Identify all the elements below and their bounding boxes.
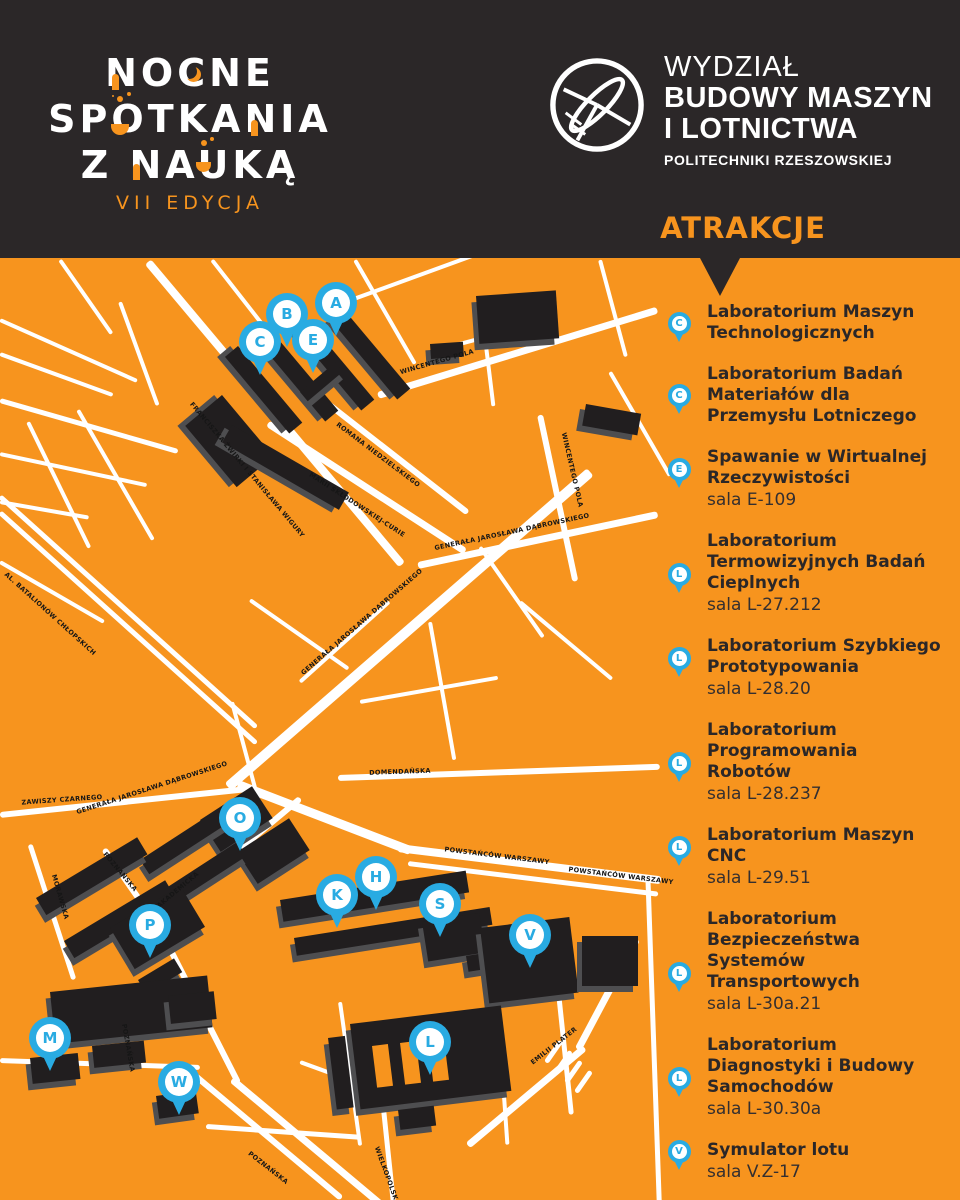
building (398, 1106, 436, 1130)
map-pin-P: P (129, 904, 171, 946)
map-pin-V: V (509, 914, 551, 956)
building (582, 936, 638, 986)
faculty-line2: BUDOWY MASZYN (664, 83, 933, 114)
attraction-title: Symulator lotu (707, 1140, 849, 1161)
faculty-line4: POLITECHNIKI RZESZOWSKIEJ (664, 152, 933, 168)
attraction-pin-wrap: V (662, 1140, 696, 1193)
map-pin-H: H (355, 856, 397, 898)
attractions-list: C Laboratorium Maszyn Technologicznych C… (662, 302, 954, 1193)
attraction-pin-icon: C (668, 384, 691, 407)
attraction-pin-wrap: C (662, 302, 696, 344)
attraction-item: L Laboratorium Diagnostyki i Budowy Samo… (662, 1035, 954, 1120)
street (574, 1070, 593, 1094)
map-pin-A: A (315, 282, 357, 324)
map-pin-K: K (316, 874, 358, 916)
street (0, 352, 113, 397)
attraction-text: Spawanie w Wirtualnej Rzeczywistości sal… (707, 447, 927, 511)
attraction-title: Spawanie w Wirtualnej Rzeczywistości (707, 447, 927, 489)
faculty-line1: WYDZIAŁ (664, 52, 933, 83)
attraction-pin-icon: V (668, 1140, 691, 1163)
street (0, 511, 258, 746)
attraction-text: Laboratorium Badań Materiałów dla Przemy… (707, 364, 916, 427)
building (476, 290, 559, 343)
attraction-title: Laboratorium Bezpieczeństwa Systemów Tra… (707, 909, 860, 993)
attraction-pin-wrap: L (662, 720, 696, 805)
map-pin-O: O (219, 797, 261, 839)
street (598, 259, 628, 357)
attraction-text: Laboratorium Szybkiego Prototypowania sa… (707, 636, 941, 700)
event-edition: VII EDYCJA (20, 192, 360, 214)
street (249, 598, 350, 670)
street-label: POZNAŃSKA (247, 1150, 289, 1185)
attraction-room: sala L-30.30a (707, 1099, 914, 1120)
map-pin-letter: A (322, 289, 350, 317)
street (0, 452, 147, 487)
header: NOCNE SPOTKANIA Z NAUKĄ VII EDYCJA WYDZI… (0, 0, 960, 258)
map-pin-S: S (419, 883, 461, 925)
map-pin-letter: V (516, 921, 544, 949)
attraction-pin-icon: C (668, 312, 691, 335)
attraction-pin-icon: L (668, 647, 691, 670)
street (58, 259, 113, 335)
attraction-pin-icon: E (668, 458, 691, 481)
faculty-name: WYDZIAŁ BUDOWY MASZYN I LOTNICTWA POLITE… (664, 52, 933, 168)
attractions-title: ATRAKCJE (655, 211, 831, 245)
attraction-title: Laboratorium Termowizyjnych Badań Ciepln… (707, 531, 925, 594)
attraction-pin-wrap: E (662, 447, 696, 511)
event-logo-line3: Z NAUKĄ (20, 142, 360, 188)
attraction-title: Laboratorium Maszyn Technologicznych (707, 302, 914, 344)
street-label: GENERAŁA JAROSŁAWA DĄBROWSKIEGO (76, 760, 229, 815)
street (519, 600, 613, 680)
attraction-item: E Spawanie w Wirtualnej Rzeczywistości s… (662, 447, 954, 511)
street-label: GENERAŁA JAROSŁAWA DĄBROWSKIEGO (300, 568, 424, 677)
street (0, 318, 138, 383)
street (478, 546, 544, 638)
building (168, 991, 217, 1024)
attraction-text: Laboratorium Bezpieczeństwa Systemów Tra… (707, 909, 860, 1015)
attraction-text: Laboratorium Termowizyjnych Badań Ciepln… (707, 531, 925, 616)
attraction-pin-wrap: L (662, 531, 696, 616)
attraction-pin-wrap: L (662, 636, 696, 700)
attraction-room: sala L-27.212 (707, 595, 925, 616)
attraction-title: Laboratorium Programowania Robotów (707, 720, 858, 783)
attraction-item: L Laboratorium Termowizyjnych Badań Ciep… (662, 531, 954, 616)
map-pin-E: E (292, 319, 334, 361)
pointer-triangle (700, 258, 740, 296)
map-pin-letter: L (416, 1028, 444, 1056)
attraction-pin-icon: L (668, 836, 691, 859)
attraction-text: Symulator lotu sala V.Z-17 (707, 1140, 849, 1193)
attraction-text: Laboratorium Diagnostyki i Budowy Samoch… (707, 1035, 914, 1120)
map-pin-W: W (158, 1061, 200, 1103)
attraction-room: sala E-109 (707, 490, 927, 511)
attraction-item: C Laboratorium Maszyn Technologicznych (662, 302, 954, 344)
map-pin-letter: S (426, 890, 454, 918)
attraction-room: sala V.Z-17 (707, 1162, 849, 1183)
attraction-item: V Symulator lotu sala V.Z-17 (662, 1140, 954, 1193)
attraction-item: L Laboratorium Bezpieczeństwa Systemów T… (662, 909, 954, 1015)
map-pin-letter: W (165, 1068, 193, 1096)
map-pin-letter: P (136, 911, 164, 939)
attraction-title: Laboratorium Badań Materiałów dla Przemy… (707, 364, 916, 427)
attraction-title: Laboratorium Szybkiego Prototypowania (707, 636, 941, 678)
attraction-text: Laboratorium Maszyn CNC sala L-29.51 (707, 825, 914, 889)
map-pin-letter: B (273, 300, 301, 328)
attraction-room: sala L-30a.21 (707, 994, 860, 1015)
attraction-title: Laboratorium Maszyn CNC (707, 825, 914, 867)
attraction-text: Laboratorium Programowania Robotów sala … (707, 720, 858, 805)
faculty-propeller-logo-icon (548, 56, 646, 154)
event-logo: NOCNE SPOTKANIA Z NAUKĄ VII EDYCJA (20, 50, 360, 214)
street (646, 880, 662, 1200)
attraction-pin-icon: L (668, 563, 691, 586)
street (0, 495, 258, 730)
map-pin-M: M (29, 1017, 71, 1059)
map-pin-C: C (239, 321, 281, 363)
attraction-item: L Laboratorium Szybkiego Prototypowania … (662, 636, 954, 700)
map-pin-letter: O (226, 804, 254, 832)
attraction-pin-icon: L (668, 752, 691, 775)
event-logo-line2: SPOTKANIA (20, 96, 360, 142)
map-pin-letter: H (362, 863, 390, 891)
attraction-room: sala L-28.20 (707, 679, 941, 700)
attraction-pin-icon: L (668, 962, 691, 985)
attraction-title: Laboratorium Diagnostyki i Budowy Samoch… (707, 1035, 914, 1098)
attraction-pin-wrap: L (662, 825, 696, 889)
map-pin-letter: E (299, 326, 327, 354)
attraction-item: L Laboratorium Maszyn CNC sala L-29.51 (662, 825, 954, 889)
street (118, 301, 159, 406)
attraction-item: L Laboratorium Programowania Robotów sal… (662, 720, 954, 805)
attraction-pin-icon: L (668, 1067, 691, 1090)
event-logo-line1: NOCNE (20, 50, 360, 96)
faculty-line3: I LOTNICTWA (664, 114, 933, 145)
map-pin-letter: K (323, 881, 351, 909)
attraction-room: sala L-28.237 (707, 784, 858, 805)
map-pin-letter: C (246, 328, 274, 356)
attraction-pin-wrap: L (662, 909, 696, 1015)
attraction-pin-wrap: L (662, 1035, 696, 1120)
attraction-pin-wrap: C (662, 364, 696, 427)
map-pin-L: L (409, 1021, 451, 1063)
attraction-text: Laboratorium Maszyn Technologicznych (707, 302, 914, 344)
attraction-item: C Laboratorium Badań Materiałów dla Prze… (662, 364, 954, 427)
map-pin-letter: M (36, 1024, 64, 1052)
street (360, 676, 499, 704)
attraction-room: sala L-29.51 (707, 868, 914, 889)
